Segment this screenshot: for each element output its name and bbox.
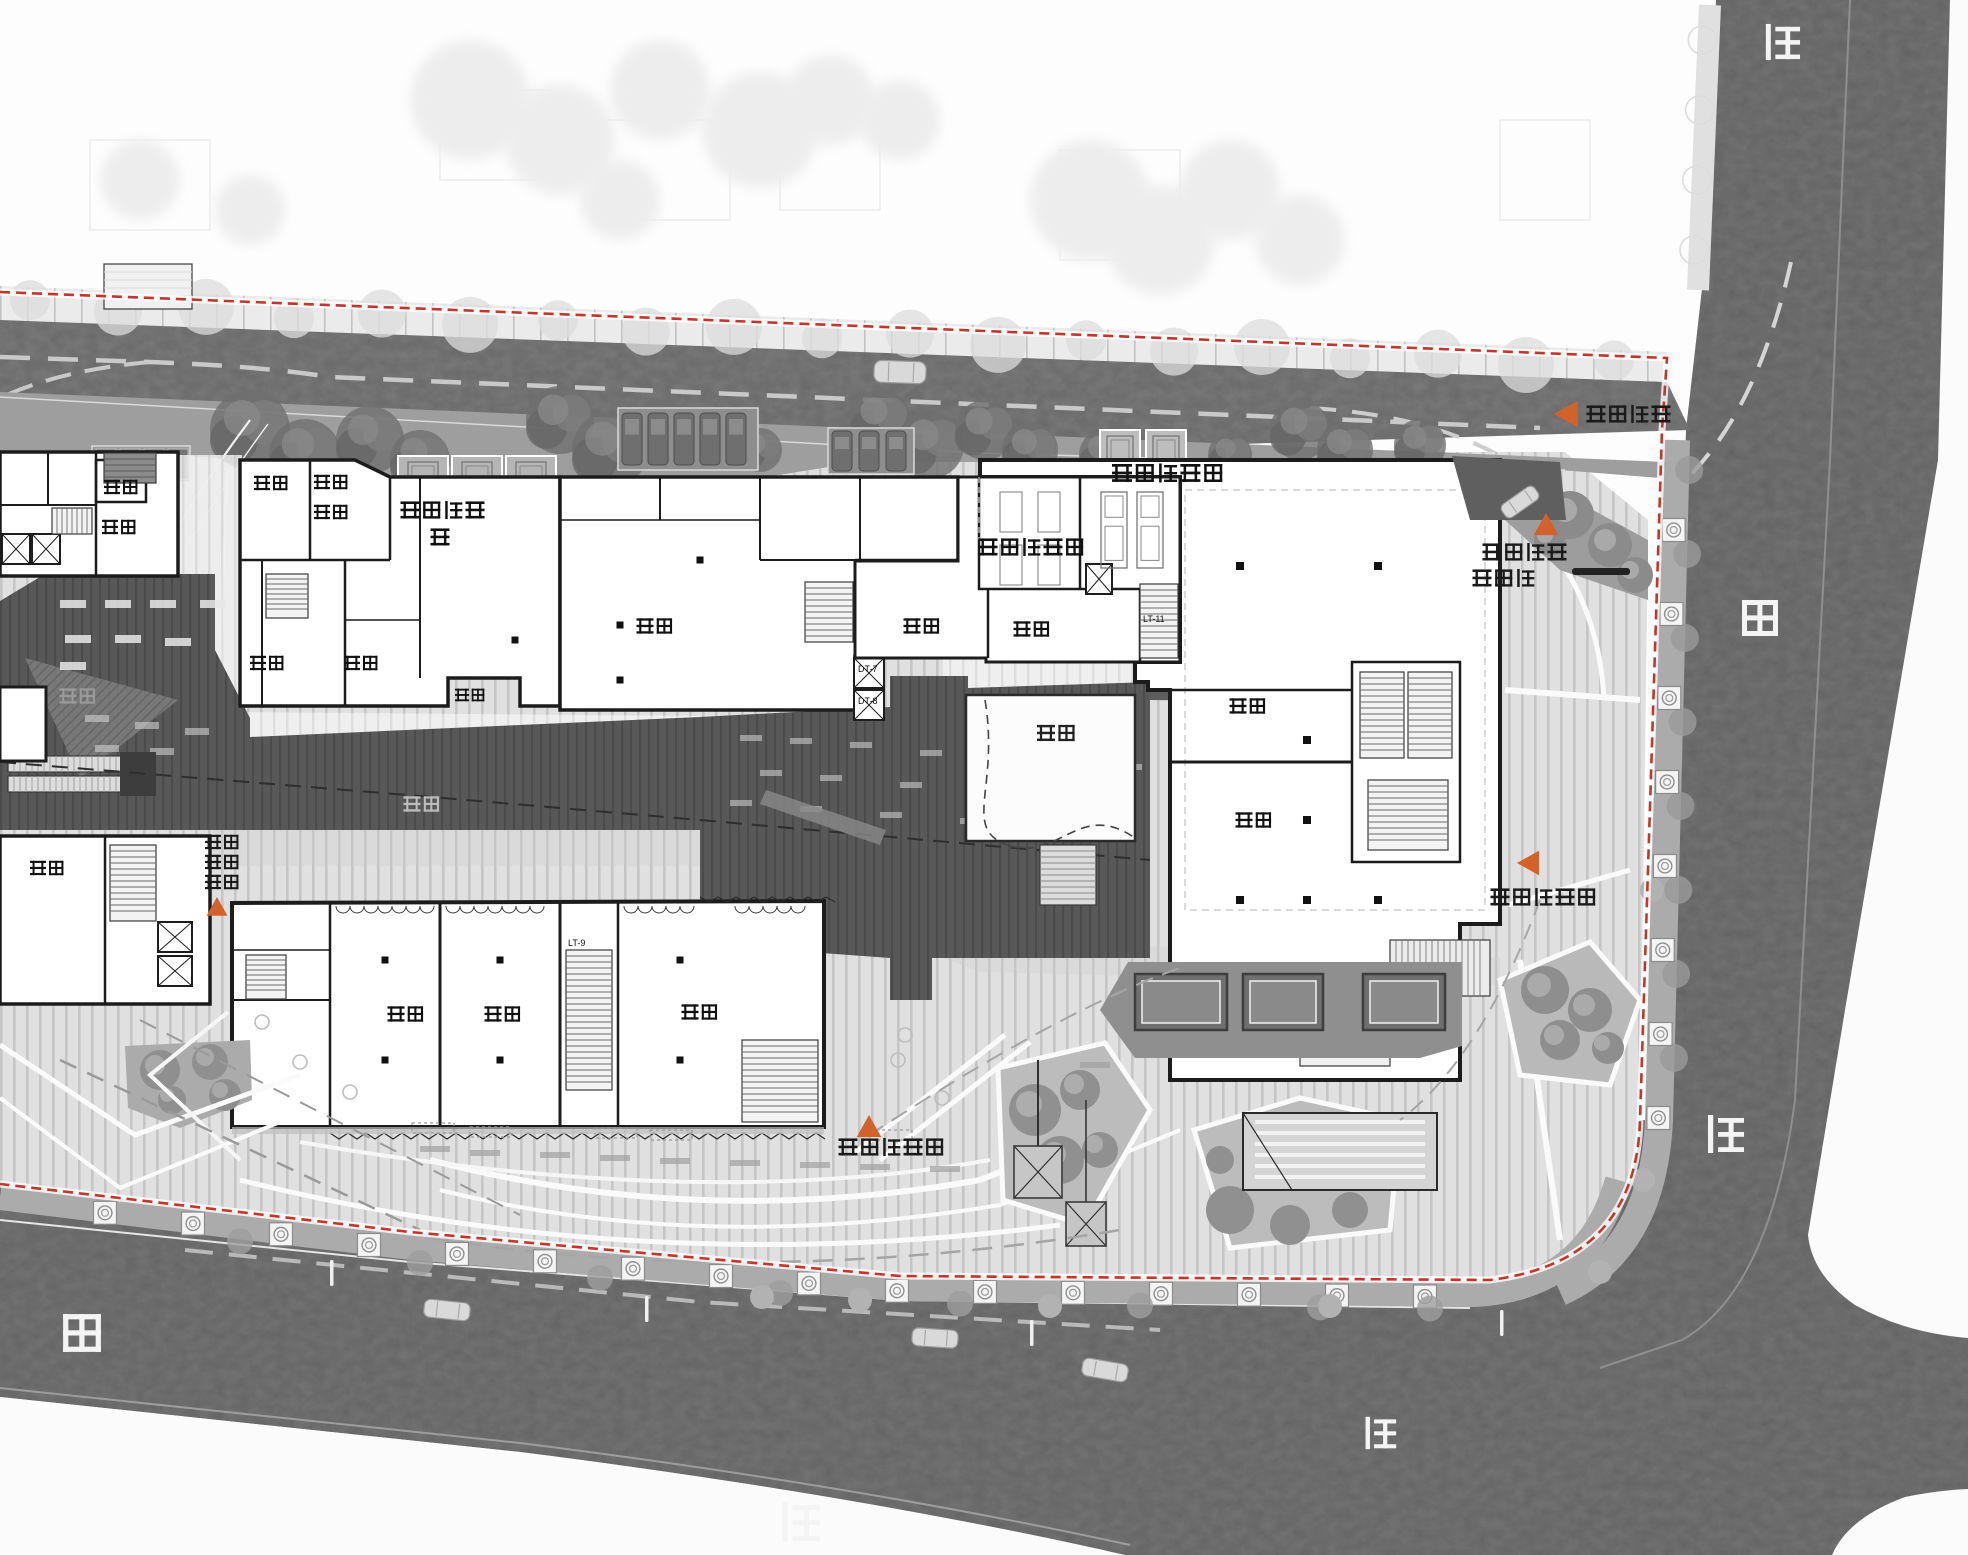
svg-text:DT-8: DT-8 (858, 696, 878, 706)
svg-text:LT-11: LT-11 (1143, 614, 1165, 624)
svg-text:DT-7: DT-7 (858, 664, 878, 674)
svg-text:LT-9: LT-9 (568, 938, 585, 948)
